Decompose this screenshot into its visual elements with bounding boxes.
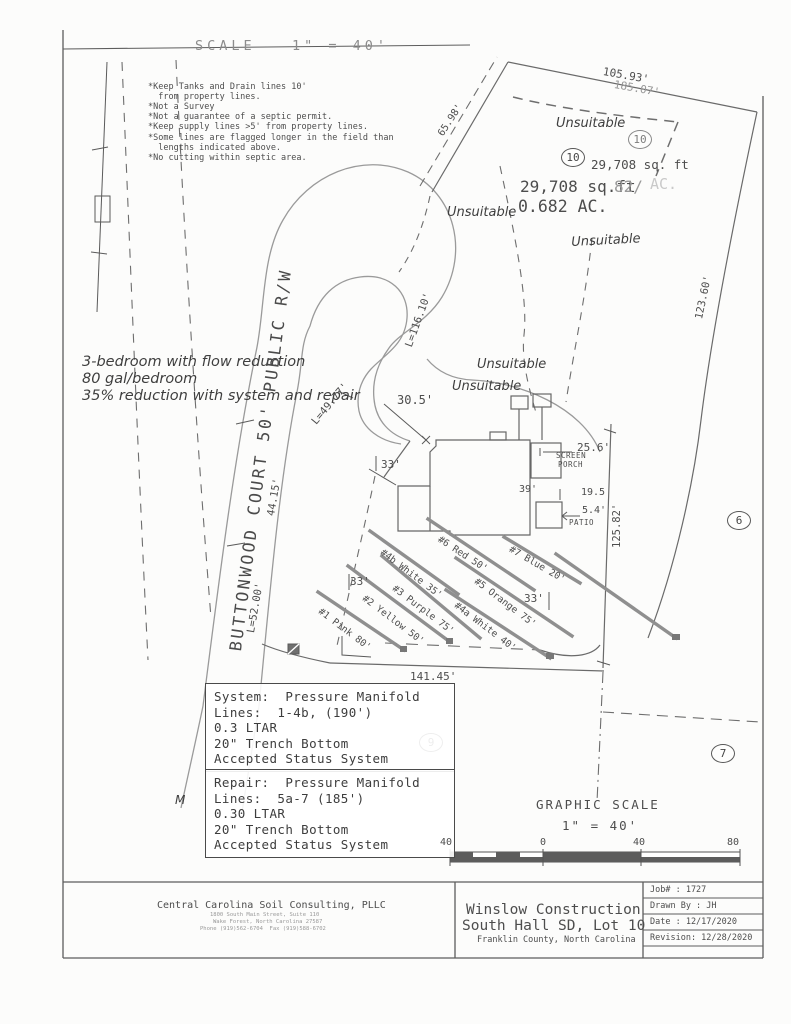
job-number: Job# : 1727: [650, 886, 706, 895]
lot-area-ghost-ac: AC.: [650, 177, 677, 192]
project-subdivision: South Hall SD, Lot 10: [462, 919, 645, 934]
drain-line-east: [556, 554, 676, 638]
dim-house-rear: 39': [519, 485, 537, 495]
repair-spec-box: Repair: Pressure Manifold Lines: 5a-7 (1…: [205, 769, 455, 858]
handwritten-note-3: 35% reduction with system and repair: [82, 389, 360, 404]
repair-line: Repair: Pressure Manifold: [214, 775, 446, 791]
driveway-curve: [427, 359, 600, 452]
screen-porch-label-1: SCREEN: [556, 452, 586, 460]
dim-east-line: 125.82': [612, 504, 623, 548]
roof-notch: [490, 432, 506, 440]
unsuitable-label: Unsuitable: [571, 232, 641, 249]
system-line: System: Pressure Manifold: [214, 689, 446, 705]
patio-label: PATIO: [569, 519, 594, 527]
company-address-2: Wake Forest, North Carolina 27587: [213, 920, 322, 926]
scale-tick-label: 40: [440, 838, 452, 848]
note-line: from property lines.: [148, 93, 261, 102]
unsuitable-label: Unsuitable: [452, 380, 521, 393]
system-spec-box: System: Pressure Manifold Lines: 1-4b, (…: [205, 683, 455, 772]
dim-field-left: 33': [350, 576, 370, 587]
septic-tank-1: [511, 396, 528, 409]
scale-header: SCALE 1" = 40': [195, 40, 389, 54]
company-phone: Phone (919)562-6704 Fax (919)588-6702: [200, 927, 326, 933]
handwritten-note-2: 80 gal/bedroom: [82, 372, 197, 387]
note-line: *Keep supply lines >5' from property lin…: [148, 123, 368, 132]
adjacent-lot-south-circle: 7: [711, 744, 735, 763]
system-line: 20" Trench Bottom: [214, 736, 446, 752]
site-plan-linework: [0, 0, 791, 1024]
graphic-scale-ratio: 1" = 40': [562, 820, 638, 833]
system-line: Lines: 1-4b, (190'): [214, 705, 446, 721]
site-plan-sheet: SCALE 1" = 40' *Keep Tanks and Drain lin…: [0, 0, 791, 1024]
note-line: lengths indicated above.: [148, 144, 281, 153]
note-line: *No cutting within septic area.: [148, 154, 307, 163]
note-line: *Not a guarantee of a septic permit.: [148, 113, 332, 122]
screen-porch-label-2: PORCH: [558, 461, 583, 469]
unsuitable-label: Unsuitable: [477, 358, 546, 371]
dim-bottom-line: 141.45': [410, 671, 456, 682]
unsuitable-label: Unsuitable: [447, 206, 516, 219]
stray-mark: M: [175, 794, 185, 806]
lot-area-small: 29,708 sq. ft: [591, 159, 689, 172]
project-client: Winslow Construction: [466, 903, 641, 918]
system-line: Accepted Status System: [214, 751, 446, 767]
adjacent-lot-east-circle: 6: [727, 511, 751, 530]
dim-house-left: 33': [381, 459, 401, 470]
lot-number-circle-ghost: 10: [628, 130, 652, 149]
lot-area-ghost: 82/: [614, 179, 643, 195]
lot-number-circle: 10: [561, 148, 585, 167]
company-name: Central Carolina Soil Consulting, PLLC: [157, 901, 386, 911]
date: Date : 12/17/2020: [650, 918, 737, 927]
scale-tick-label: 40: [633, 838, 645, 848]
unsuitable-label: Unsuitable: [556, 117, 625, 130]
scale-tick-label: 0: [540, 838, 546, 848]
dim-patio-offset: 19.5: [581, 488, 605, 498]
patio-outline: [536, 502, 562, 528]
screen-porch-outline: [531, 443, 561, 478]
dim-field-right: 33': [524, 593, 544, 604]
system-line: 0.3 LTAR: [214, 720, 446, 736]
project-county: Franklin County, North Carolina: [477, 936, 636, 945]
graphic-scale-title: GRAPHIC SCALE: [536, 799, 660, 812]
field-east-line: [603, 424, 611, 668]
repair-line: Lines: 5a-7 (185'): [214, 791, 446, 807]
repair-line: 0.30 LTAR: [214, 806, 446, 822]
dim-road-to-house: 30.5': [397, 394, 433, 406]
scale-bar: [450, 849, 740, 866]
dim-patio-width: 5.4': [582, 506, 606, 516]
note-line: *Keep Tanks and Drain lines 10': [148, 83, 307, 92]
scale-tick-label: 80: [727, 838, 739, 848]
lot-acreage: 0.682 AC.: [518, 199, 607, 216]
house-outline: [398, 394, 562, 535]
note-line: *Not a Survey: [148, 103, 215, 112]
company-address-1: 1800 South Main Street, Suite 110: [210, 913, 319, 919]
drawn-by: Drawn By : JH: [650, 902, 717, 911]
repair-line: 20" Trench Bottom: [214, 822, 446, 838]
revision-date: Revision: 12/28/2020: [650, 934, 752, 943]
repair-line: Accepted Status System: [214, 837, 446, 853]
note-line: *Some lines are flagged longer in the fi…: [148, 134, 394, 143]
